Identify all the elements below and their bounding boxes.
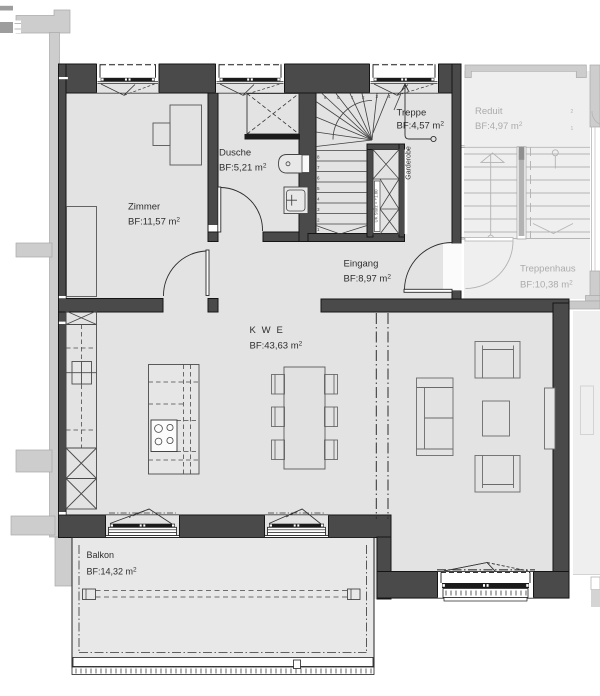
svg-text:Zimmer: Zimmer <box>128 202 160 213</box>
svg-text:BF:11,57 m2: BF:11,57 m2 <box>128 217 180 228</box>
svg-text:BF:43,63 m2: BF:43,63 m2 <box>250 341 303 352</box>
svg-text:BF:14,32 m2: BF:14,32 m2 <box>87 567 138 577</box>
svg-text:Dusche: Dusche <box>219 148 251 159</box>
svg-text:BF:10,38 m2: BF:10,38 m2 <box>520 280 573 291</box>
svg-text:Eingang: Eingang <box>344 259 379 270</box>
svg-text:Treppenhaus: Treppenhaus <box>520 264 576 275</box>
svg-text:Reduit: Reduit <box>475 106 503 117</box>
svg-text:BF:5,21 m2: BF:5,21 m2 <box>219 163 267 174</box>
svg-text:BF:4,57 m2: BF:4,57 m2 <box>397 121 445 132</box>
svg-text:Balkon: Balkon <box>87 550 115 560</box>
svg-text:BF:4,97 m2: BF:4,97 m2 <box>475 121 523 132</box>
svg-text:Treppe: Treppe <box>397 108 427 119</box>
svg-text:2: 2 <box>571 109 574 115</box>
svg-text:Garderobe: Garderobe <box>405 146 412 180</box>
svg-text:UK Sturz = +1.80: UK Sturz = +1.80 <box>374 189 379 223</box>
svg-text:BF:8,97 m2: BF:8,97 m2 <box>344 274 392 285</box>
svg-text:1: 1 <box>571 126 574 132</box>
svg-text:K W E: K W E <box>250 325 285 336</box>
